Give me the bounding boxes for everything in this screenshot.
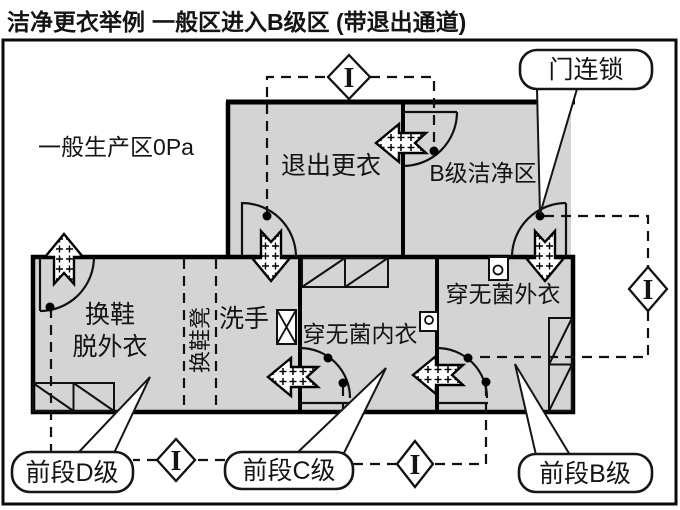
room-label-wash-hands: 洗手 — [219, 305, 269, 333]
callout-label-front-d: 前段D级 — [25, 459, 118, 487]
callout-label-front-c: 前段C级 — [242, 457, 335, 485]
fixture-outerwear-room — [489, 257, 508, 280]
zone-label-general-area: 一般生产区0Pa — [38, 134, 194, 160]
interlock-symbol-bottom-right: I — [410, 450, 421, 481]
room-label-shoe-bench: 换鞋凳 — [188, 307, 213, 373]
diagram-canvas: 洁净更衣举例 一般区进入B级区 (带退出通道) 一般生产区0Pa — [0, 0, 680, 510]
room-label-exit-changing: 退出更衣 — [281, 152, 381, 180]
diagram-title-left: 洁净更衣举例 — [7, 9, 145, 35]
callout-label-front-b: 前段B级 — [539, 460, 631, 488]
callout-label-door-interlock: 门连锁 — [548, 56, 623, 84]
sink-wash-hands — [277, 310, 296, 344]
room-label-change-shoes: 换鞋 — [85, 301, 135, 329]
cleanroom-changing-diagram: 洁净更衣举例 一般区进入B级区 (带退出通道) 一般生产区0Pa — [0, 0, 680, 510]
room-label-grade-b-clean: B级洁净区 — [429, 160, 536, 186]
room-label-sterile-underwear: 穿无菌内衣 — [303, 321, 418, 347]
room-label-remove-outerwear: 脱外衣 — [72, 333, 147, 361]
interlock-symbol-top: I — [344, 63, 355, 94]
interlock-symbol-right: I — [643, 275, 654, 306]
diagram-title-right: 一般区进入B级区 (带退出通道) — [152, 9, 466, 35]
room-label-sterile-outerwear: 穿无菌外衣 — [446, 281, 561, 307]
fixture-underwear-room — [420, 312, 438, 331]
interlock-symbol-bottom-left: I — [171, 446, 182, 477]
